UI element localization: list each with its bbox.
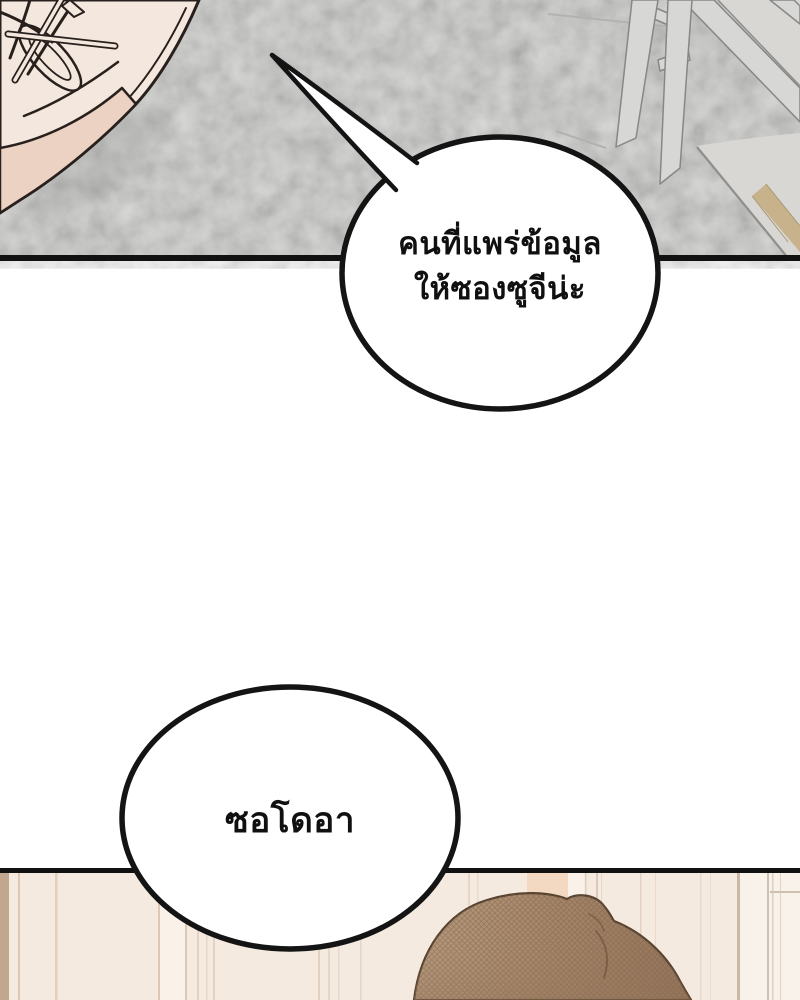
door-frame (737, 872, 800, 1000)
webtoon-page: คนที่แพร่ข้อมูล ให้ซองซูจีน่ะ ซอโดอา (0, 0, 800, 1000)
speech-bubble-2 (122, 687, 458, 949)
door-panel-line (770, 891, 800, 893)
comic-artwork (0, 0, 800, 1000)
